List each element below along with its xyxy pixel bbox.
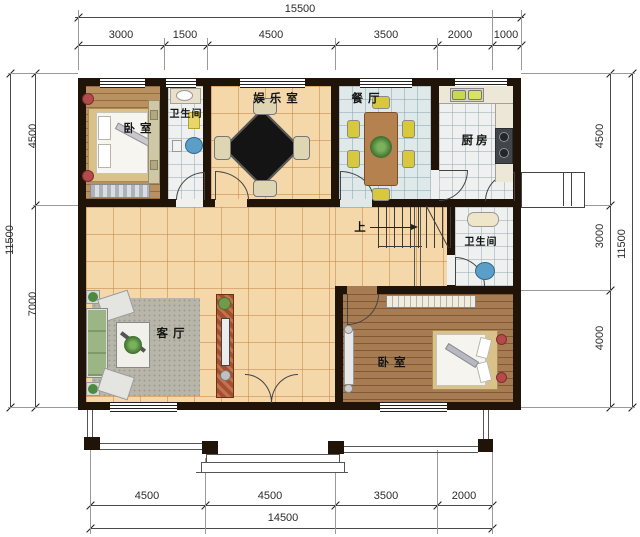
chair	[347, 150, 360, 168]
chair	[253, 180, 277, 197]
dim-top-total-line	[75, 17, 524, 18]
tv	[221, 318, 230, 366]
porch-rail	[87, 410, 93, 439]
dim-extension	[492, 446, 493, 534]
door-threshold	[347, 286, 377, 294]
bedside-lamp	[496, 372, 507, 383]
dim-bottom-seg-label: 3500	[361, 490, 411, 502]
chair	[347, 120, 360, 138]
room-label-bedroom-top: 卧室	[110, 120, 170, 136]
bench	[344, 330, 354, 385]
dresser-item	[150, 110, 158, 120]
bed-pillow	[98, 144, 111, 168]
dim-top-seg-label: 4500	[246, 29, 296, 41]
dim-left-total-label: 11500	[4, 216, 16, 264]
stairs-up-label: 上	[352, 219, 368, 235]
room-label-entertainment: 娱乐室	[240, 90, 316, 106]
dim-bottom-seg-line	[90, 505, 492, 506]
dim-bottom-total-label: 14500	[255, 512, 311, 524]
window	[360, 78, 412, 88]
sink-basin	[468, 90, 482, 100]
dim-right-seg-line	[610, 73, 611, 407]
dim-extension	[8, 407, 78, 408]
room-label-bedroom-bottom: 卧室	[364, 354, 424, 370]
stairs-up-arrowhead	[411, 224, 418, 230]
chair	[402, 150, 415, 168]
stairs-up-arrow-line	[370, 227, 414, 228]
dim-top-seg-label: 1500	[160, 29, 210, 41]
dim-top-seg-label: 2000	[437, 29, 483, 41]
window	[380, 402, 447, 412]
bedside-lamp	[82, 170, 94, 182]
dim-extension	[521, 10, 522, 70]
door-threshold	[215, 199, 247, 207]
interior-wall	[160, 78, 168, 207]
room-label-living: 客厅	[145, 325, 201, 341]
cabinet-knob	[220, 370, 231, 381]
window	[166, 78, 196, 88]
entry-step-edge	[196, 472, 348, 473]
dim-top-seg-label: 3000	[96, 29, 146, 41]
wash-basin	[475, 262, 495, 280]
window	[240, 78, 305, 88]
toilet	[185, 137, 203, 154]
dresser-item	[150, 160, 158, 170]
dim-extension	[521, 407, 635, 408]
bedside-lamp	[82, 93, 94, 105]
dim-extension	[437, 38, 438, 70]
dim-bottom-total-line	[90, 528, 492, 529]
door-threshold	[176, 199, 203, 207]
rug	[90, 184, 150, 198]
table-plant	[370, 136, 392, 158]
dim-bottom-seg-label: 2000	[439, 490, 489, 502]
door-threshold	[340, 199, 372, 207]
door-threshold	[447, 255, 455, 285]
side-landing-step-line	[571, 172, 572, 206]
dim-bottom-seg-label: 4500	[245, 490, 295, 502]
dim-left-seg-label: 4500	[27, 112, 39, 160]
chair	[372, 188, 390, 201]
dim-top-seg-line	[78, 45, 521, 46]
stairs-stringer	[414, 207, 421, 286]
chair	[214, 136, 231, 160]
side-landing	[521, 172, 585, 208]
dim-extension	[521, 290, 612, 291]
sofa-cushions	[88, 310, 106, 376]
dim-top-total-label: 15500	[272, 3, 328, 15]
door-threshold	[431, 170, 439, 199]
toilet-tank	[172, 140, 182, 152]
porch-post	[478, 439, 493, 452]
bedside-lamp	[496, 334, 507, 345]
porch-rail	[483, 410, 489, 439]
table-plant	[124, 336, 142, 354]
room-label-dining: 餐厅	[340, 90, 396, 106]
bench-knob	[344, 384, 353, 393]
porch-post	[84, 437, 100, 450]
window	[110, 402, 177, 412]
chair	[402, 120, 415, 138]
exterior-wall-right	[513, 78, 521, 410]
dim-bottom-seg-label: 4500	[122, 490, 172, 502]
dim-extension	[207, 38, 208, 70]
dim-extension	[78, 10, 79, 70]
cabinet-plant	[218, 297, 231, 310]
sink-basin	[452, 90, 466, 100]
dim-left-seg-label: 7000	[27, 280, 39, 328]
dim-right-seg-label: 4500	[594, 112, 606, 160]
interior-wall	[431, 78, 439, 170]
window	[100, 78, 145, 88]
dim-extension	[164, 38, 165, 70]
interior-wall	[335, 294, 343, 402]
dim-right-total-line	[632, 73, 633, 407]
exterior-wall-left	[78, 78, 86, 410]
sink-basin	[176, 90, 193, 101]
interior-wall	[247, 199, 340, 207]
floor-plan-canvas: 15500 3000 1500 4500 3500 2000 1000 1150…	[0, 0, 640, 537]
porch-rail	[100, 443, 202, 450]
interior-wall	[377, 286, 513, 294]
interior-wall	[78, 199, 176, 207]
chair	[293, 136, 310, 160]
room-label-bathroom-top: 卫生间	[164, 105, 208, 120]
bench-knob	[344, 325, 353, 334]
interior-wall	[335, 286, 347, 294]
wardrobe	[386, 295, 476, 308]
dim-extension	[8, 73, 78, 74]
dim-extension	[492, 10, 493, 70]
dim-extension	[90, 450, 91, 534]
interior-wall	[331, 78, 339, 207]
dim-right-seg-label: 4000	[594, 314, 606, 362]
porch-post	[328, 441, 344, 454]
interior-wall	[203, 199, 215, 207]
bathtub	[467, 212, 499, 227]
room-label-kitchen: 厨房	[447, 132, 505, 148]
room-label-bathroom-mid: 卫生间	[456, 233, 506, 248]
dim-right-seg-label: 3000	[594, 212, 606, 260]
dim-top-seg-label: 3500	[361, 29, 411, 41]
dim-extension	[335, 38, 336, 70]
porch-post	[202, 441, 218, 454]
dim-extension	[437, 450, 438, 534]
dim-right-total-label: 11500	[616, 220, 628, 268]
dim-extension	[521, 73, 635, 74]
porch-rail	[344, 446, 478, 453]
dim-extension	[33, 205, 78, 206]
stove-burner	[499, 148, 509, 158]
side-landing-step-line	[563, 172, 564, 206]
